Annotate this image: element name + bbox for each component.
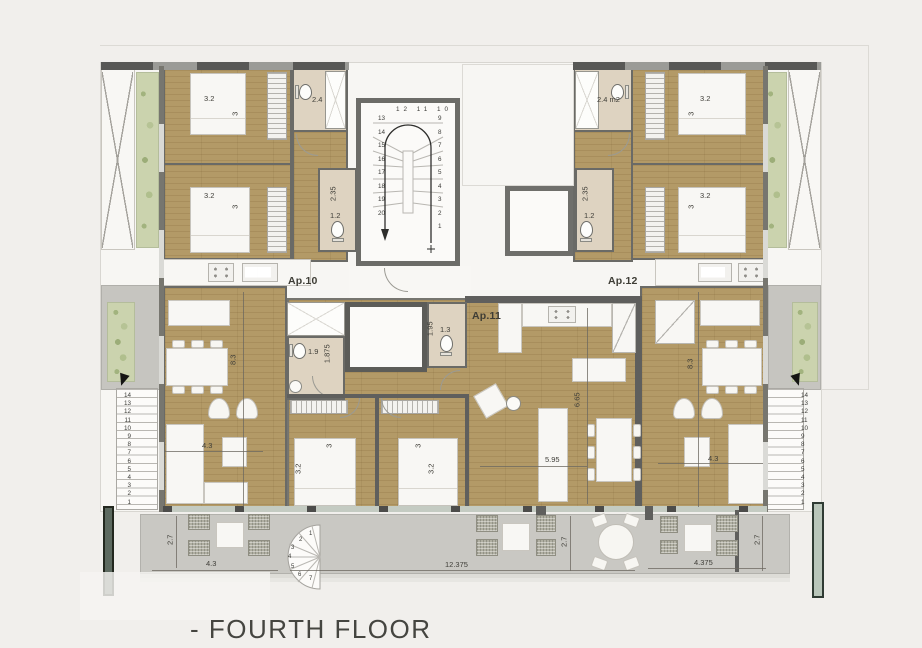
apartment-label-ap12: Ap.12 [608, 275, 638, 287]
dimension-line [648, 568, 766, 569]
landing-corridor [349, 266, 471, 300]
dining-chair [633, 468, 641, 481]
kitchen-island [700, 300, 760, 326]
spiral-step-number: 3 [291, 545, 294, 551]
dim-label: 3 [325, 431, 333, 461]
ghost-outline-corner [821, 389, 869, 390]
dim-label: 3.2 [700, 192, 710, 200]
sofa-chaise [204, 482, 248, 504]
dim-label: 3.2 [294, 454, 302, 484]
wicker-chair [188, 540, 210, 556]
dining-chair [744, 386, 757, 394]
dining-chair [191, 340, 204, 348]
dining-table [702, 348, 762, 386]
spiral-step-number: 2 [299, 537, 302, 543]
wardrobe [612, 303, 636, 353]
terrace-table [684, 524, 712, 552]
dim-label: 1.3 [440, 326, 450, 334]
wicker-chair [536, 539, 556, 556]
dining-table [596, 418, 632, 482]
dining-chair [725, 386, 738, 394]
stairs-side-right [766, 388, 804, 510]
dim-label: 2.35 [329, 179, 337, 209]
wall [375, 394, 379, 510]
terrace-pier [645, 506, 653, 520]
spiral-step-number: 4 [288, 554, 291, 560]
elevator [345, 302, 427, 372]
window-wall-left [159, 66, 164, 512]
balcony-right-brace-icon [789, 72, 820, 248]
dim-label: 6.65 [573, 383, 581, 417]
dim-label: 2.35 [581, 179, 589, 209]
dining-chair [587, 468, 595, 481]
closet [267, 72, 287, 140]
dining-chair [210, 340, 223, 348]
sink-icon [289, 380, 302, 393]
dining-table [166, 348, 228, 386]
floor-plan-canvas: 14 13 12 11 10 9 8 7 6 5 4 3 2 1 14 13 1… [0, 0, 922, 648]
dimension-line [152, 570, 278, 571]
dim-label: 1.2 [330, 212, 340, 220]
wicker-chair [188, 514, 210, 530]
toilet-icon [331, 221, 344, 238]
ghost-outline-top [100, 45, 869, 46]
dining-chair [587, 446, 595, 459]
wall [465, 394, 469, 510]
spiral-step-number: 1 [309, 531, 312, 537]
dimension-line [480, 466, 587, 467]
planter-right-mid [792, 302, 818, 382]
side-table [506, 396, 521, 411]
dim-label: 2.4 m2 [597, 96, 620, 104]
stove-icon [208, 263, 234, 282]
toilet-tank-icon [440, 352, 452, 356]
window-wall-right [763, 66, 768, 512]
dimension-line [290, 570, 635, 571]
wicker-chair [716, 540, 738, 556]
spiral-step-number: 7 [309, 576, 312, 582]
dim-label: 3 [231, 192, 239, 222]
dining-chair [172, 340, 185, 348]
toilet-tank-icon [580, 238, 592, 242]
dimension-line [176, 516, 177, 568]
toilet-icon [293, 343, 306, 359]
fade-overlay [80, 572, 270, 620]
stairs-side-left-numbers: 14 13 12 11 10 9 8 7 6 5 4 3 2 1 [118, 392, 131, 507]
dim-label: 2.7 [753, 525, 761, 555]
wicker-chair [660, 540, 678, 554]
dimension-line [243, 292, 244, 507]
planter-left-top [136, 72, 159, 248]
exterior-wall-top-right [573, 62, 821, 70]
dim-label: 4.375 [694, 559, 713, 567]
wicker-chair [476, 515, 498, 532]
dimension-line [698, 292, 699, 507]
dim-label: 3 [231, 99, 239, 129]
dining-chair [744, 340, 757, 348]
dim-label: 5.95 [545, 456, 560, 464]
dim-label: 3 [687, 99, 695, 129]
dim-label: 3.2 [427, 454, 435, 484]
dimension-line [762, 516, 763, 571]
dim-label: 3.2 [204, 192, 214, 200]
apartment-label-ap10: Ap.10 [288, 275, 318, 287]
wicker-chair [536, 515, 556, 532]
sideboard [572, 358, 626, 382]
dim-label: 8.3 [686, 349, 694, 379]
dining-chair [210, 386, 223, 394]
dim-label: 8.3 [229, 345, 237, 375]
dim-label: 4.3 [202, 442, 212, 450]
dim-label: 2.4 [312, 96, 322, 104]
spiral-staircase-icon [280, 524, 324, 590]
apartment-label-ap11: Ap.11 [472, 310, 501, 322]
entry-closet [655, 300, 695, 344]
ghost-outline-right [868, 45, 869, 390]
stairs-side-right-numbers: 14 13 12 11 10 9 8 7 6 5 4 3 2 1 [801, 392, 814, 507]
main-stair-numbers-right: 9 8 7 6 5 4 3 2 1 [438, 112, 442, 234]
dining-chair [633, 446, 641, 459]
wicker-chair [248, 540, 270, 556]
dining-chair [191, 386, 204, 394]
dining-chair [172, 386, 185, 394]
elevator [505, 186, 573, 256]
main-stair-numbers-top: 12 11 10 [396, 106, 452, 114]
terrace-table [502, 523, 530, 551]
terrace-round-table [598, 524, 634, 560]
dim-label: 3.2 [204, 95, 214, 103]
kitchen-island [168, 300, 230, 326]
dining-chair [725, 340, 738, 348]
dim-label: 3 [687, 192, 695, 222]
dim-label: 4.3 [708, 455, 718, 463]
toilet-icon [299, 84, 312, 100]
bed [190, 187, 250, 253]
wicker-chair [476, 539, 498, 556]
spiral-step-number: 6 [298, 572, 301, 578]
dimension-line [165, 451, 263, 452]
ap11-pantry [498, 303, 522, 353]
sink-icon [698, 263, 732, 282]
glass-panel-right [812, 502, 824, 598]
dimension-line [587, 308, 588, 504]
terrace-table [216, 522, 244, 548]
floor-title: - FOURTH FLOOR [190, 614, 432, 645]
closet [267, 187, 287, 253]
dim-label: 4.3 [206, 560, 216, 568]
dim-label: 3.2 [700, 95, 710, 103]
dim-label: 1.2 [584, 212, 594, 220]
wicker-chair [660, 516, 678, 533]
wicker-chair [716, 515, 738, 532]
wall [465, 296, 640, 303]
toilet-tank-icon [625, 85, 629, 99]
dining-chair [706, 340, 719, 348]
dim-label: 2.7 [560, 527, 568, 557]
dim-label: 2.7 [166, 525, 174, 555]
sofa [728, 424, 764, 504]
dining-chair [706, 386, 719, 394]
shower [325, 71, 346, 129]
window-wall-bottom [163, 506, 767, 512]
balcony-left-brace-icon [102, 72, 133, 248]
dining-chair [587, 424, 595, 437]
dim-label: 1.95 [426, 314, 434, 344]
sofa [166, 424, 204, 504]
dim-label: 3 [414, 431, 422, 461]
stove-icon [738, 263, 764, 282]
exterior-wall-top-left [101, 62, 349, 70]
shaft-ghost-outline [462, 64, 574, 186]
dim-label: 1.875 [323, 337, 331, 371]
shower [575, 71, 599, 129]
closet [645, 72, 665, 140]
planter-left-mid [107, 302, 135, 382]
dim-label: 12.375 [445, 561, 468, 569]
main-stair-numbers-left: 13 14 15 16 17 18 19 20 [378, 112, 385, 220]
closet [645, 187, 665, 253]
sink-icon [242, 263, 278, 282]
dim-label: 1.9 [308, 348, 318, 356]
toilet-icon [440, 335, 453, 352]
dimension-line [658, 463, 763, 464]
dimension-line [570, 516, 571, 571]
wicker-chair [248, 514, 270, 530]
dining-chair [633, 424, 641, 437]
ap10-ensuite-shower [287, 302, 345, 336]
toilet-tank-icon [332, 238, 344, 242]
toilet-icon [580, 221, 593, 238]
stove-icon [548, 306, 576, 323]
